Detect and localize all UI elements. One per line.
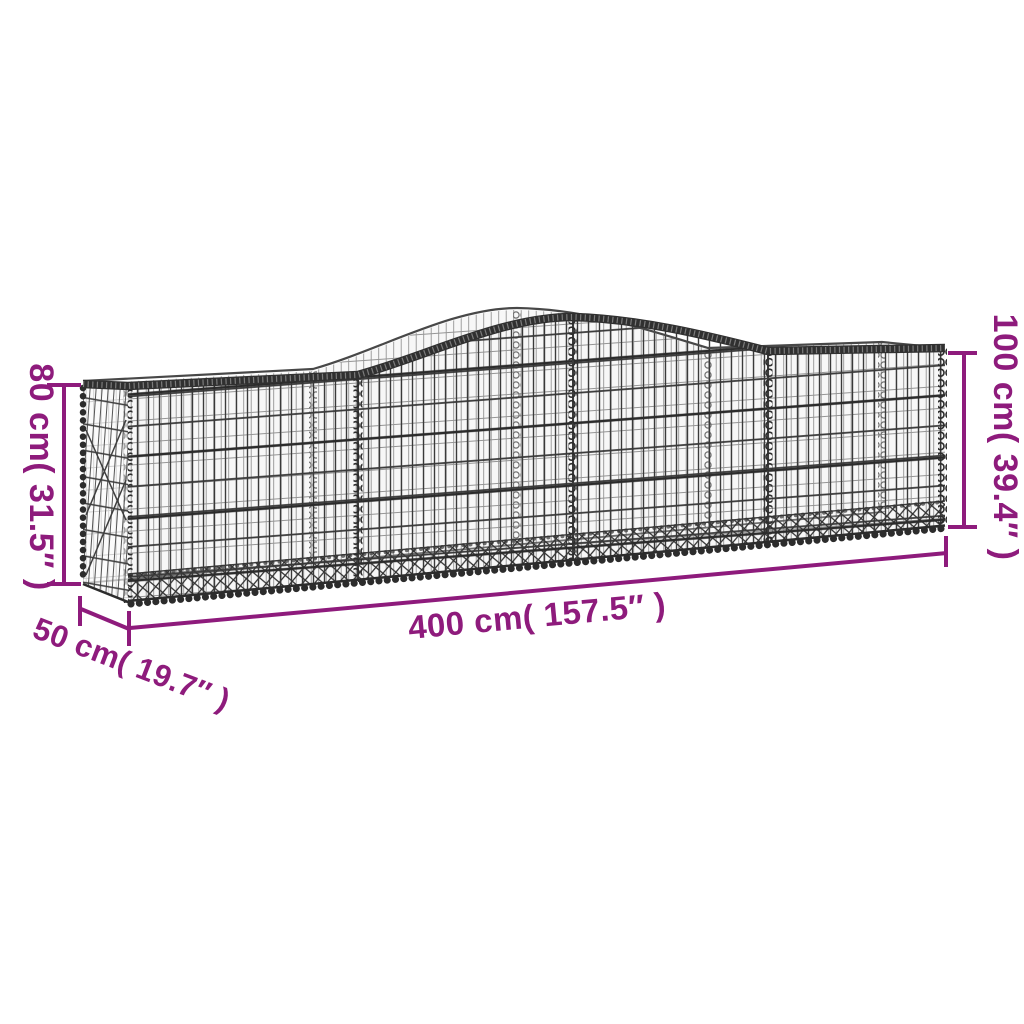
height-right-dimension-line bbox=[948, 353, 977, 527]
height-right-label: 100 cm( 39.4″ ) bbox=[986, 314, 1024, 561]
left-end-panel bbox=[80, 380, 132, 605]
gabion-basket-dimension-diagram: 80 cm( 31.5″ ) 100 cm( 39.4″ ) 400 cm( 1… bbox=[0, 0, 1024, 1024]
height-left-label: 80 cm( 31.5″ ) bbox=[22, 363, 60, 590]
depth-dimension-line bbox=[80, 596, 129, 629]
length-label: 400 cm( 157.5″ ) bbox=[406, 585, 667, 646]
product-diagram-canvas: 80 cm( 31.5″ ) 100 cm( 39.4″ ) 400 cm( 1… bbox=[0, 0, 1024, 1024]
gabion-basket bbox=[78, 295, 958, 615]
